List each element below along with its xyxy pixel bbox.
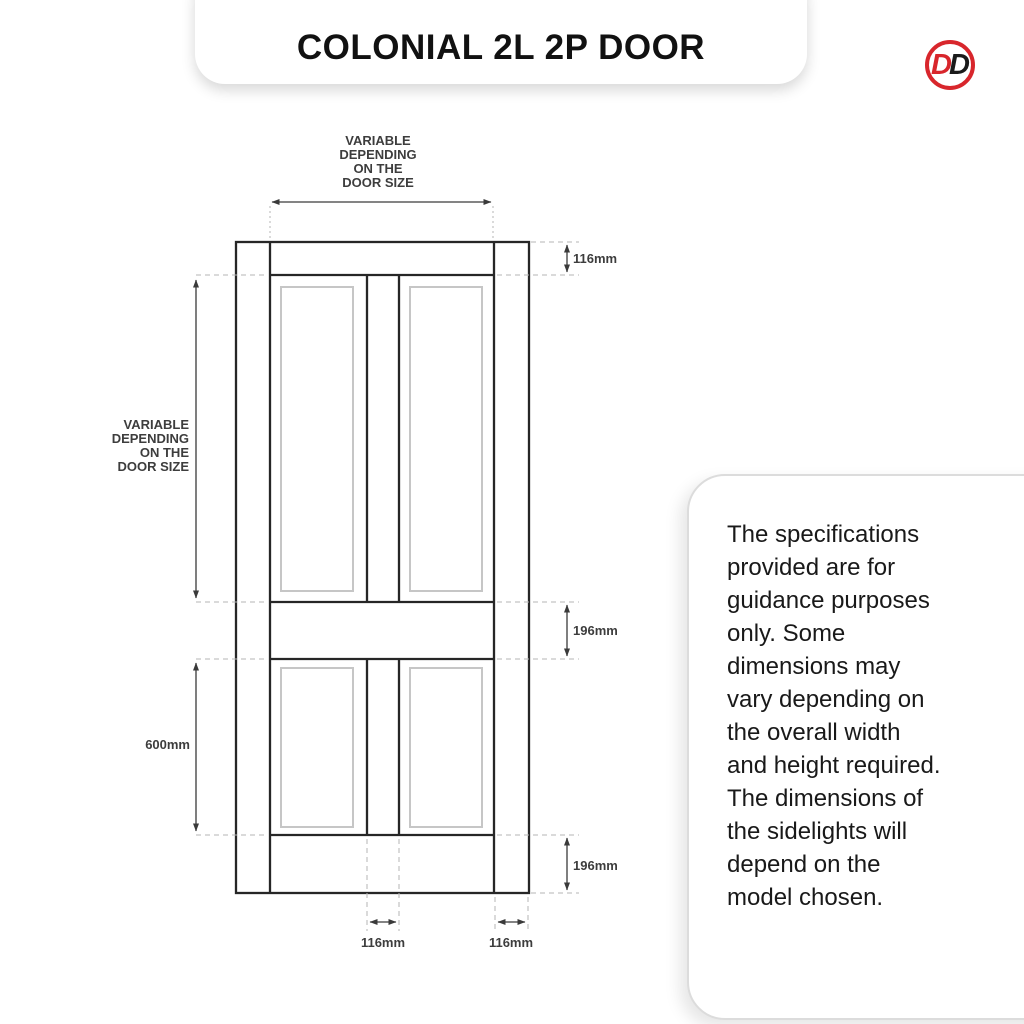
specification-note-text: The specifications provided are for guid…: [727, 518, 1024, 914]
dimension-arrows: [196, 202, 567, 922]
upper-left-panel: [281, 287, 353, 591]
outer-stile-dim-label: 116mm: [489, 935, 533, 950]
specification-note-panel: The specifications provided are for guid…: [687, 474, 1024, 1020]
door-outline: [236, 242, 529, 893]
page-title: COLONIAL 2L 2P DOOR: [297, 28, 705, 68]
page: VARIABLE DEPENDING ON THE DOOR SIZE VARI…: [0, 0, 1024, 1024]
dd-logo: DD: [925, 40, 975, 90]
left-height-label-line4: DOOR SIZE: [117, 459, 189, 474]
left-height-label-line3: ON THE: [140, 445, 189, 460]
top-width-label-line1: VARIABLE: [345, 133, 411, 148]
dimension-labels: VARIABLE DEPENDING ON THE DOOR SIZE VARI…: [112, 133, 618, 950]
top-width-label-line3: ON THE: [353, 161, 402, 176]
center-stile-dim-label: 116mm: [361, 935, 405, 950]
panel-mouldings: [281, 287, 482, 827]
top-rail-dim-label: 116mm: [573, 251, 617, 266]
left-height-label-line1: VARIABLE: [124, 417, 190, 432]
middle-rail-dim-label: 196mm: [573, 623, 618, 638]
upper-right-panel: [410, 287, 482, 591]
top-width-label-line4: DOOR SIZE: [342, 175, 414, 190]
lower-right-panel: [410, 668, 482, 827]
left-height-label-line2: DEPENDING: [112, 431, 189, 446]
bottom-rail-dim-label: 196mm: [573, 858, 618, 873]
top-width-label-line2: DEPENDING: [339, 147, 416, 162]
lower-left-panel: [281, 668, 353, 827]
logo-letter-d1: D: [931, 51, 949, 80]
dimension-guides: [196, 206, 579, 931]
logo-letter-d2: D: [949, 51, 967, 80]
title-banner: COLONIAL 2L 2P DOOR: [195, 0, 807, 84]
door-outer-frame: [236, 242, 529, 893]
bottom-panel-dim-label: 600mm: [145, 737, 190, 752]
